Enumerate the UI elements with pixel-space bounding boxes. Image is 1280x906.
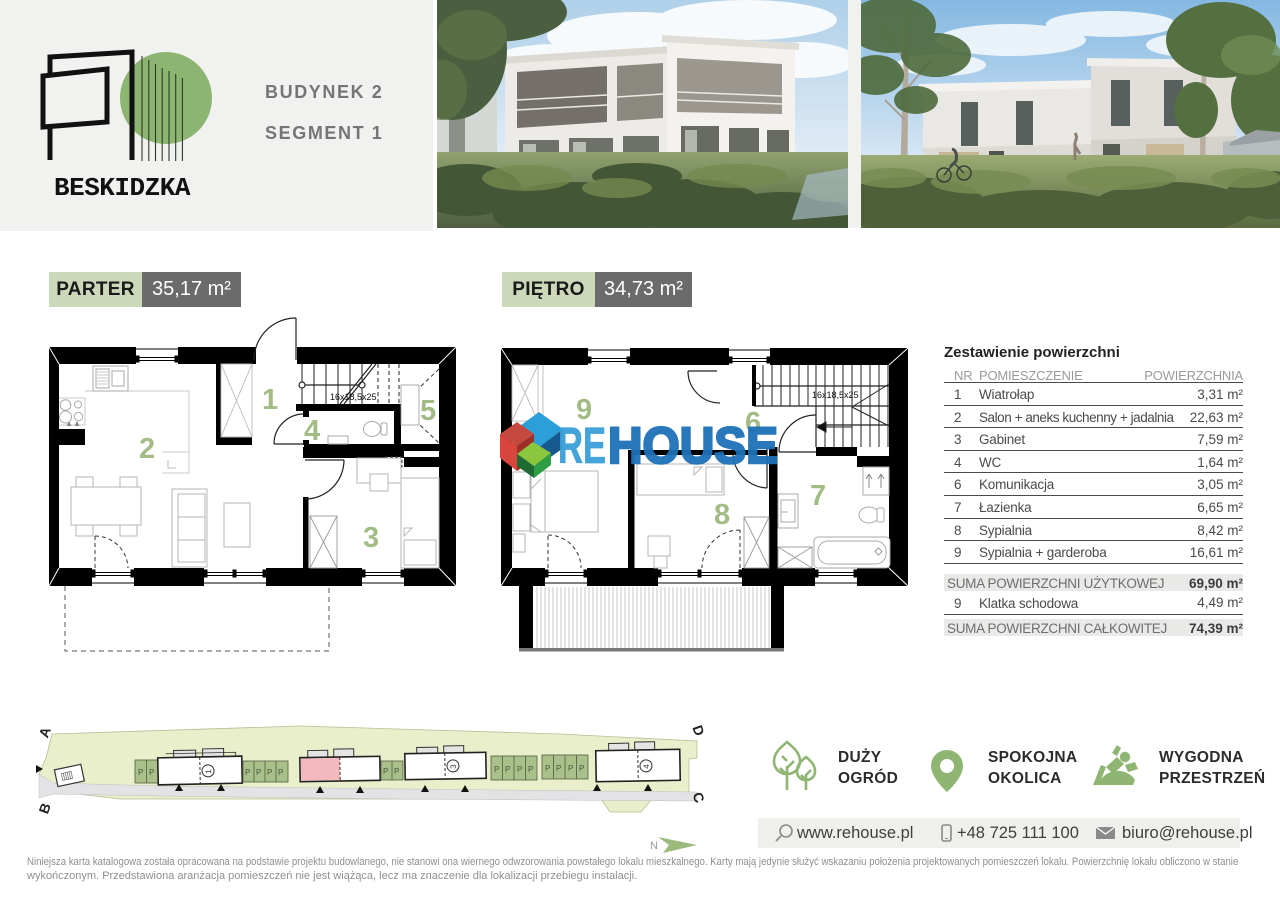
- svg-text:7: 7: [810, 480, 826, 512]
- svg-text:RE: RE: [558, 417, 606, 474]
- svg-text:2: 2: [139, 433, 155, 465]
- svg-text:P: P: [267, 768, 272, 777]
- svg-text:N: N: [650, 840, 658, 852]
- svg-text:5: 5: [420, 395, 436, 427]
- svg-text:P: P: [245, 768, 250, 777]
- svg-text:P: P: [494, 765, 499, 774]
- svg-text:3: 3: [449, 764, 458, 769]
- svg-text:3: 3: [363, 522, 379, 554]
- svg-text:P: P: [149, 768, 154, 777]
- svg-text:8: 8: [714, 499, 730, 531]
- svg-text:A: A: [35, 725, 53, 740]
- svg-text:P: P: [579, 764, 584, 773]
- svg-text:P: P: [256, 768, 261, 777]
- svg-text:P: P: [278, 768, 283, 777]
- svg-text:P: P: [138, 768, 143, 777]
- svg-text:P: P: [517, 765, 522, 774]
- svg-text:16x18,5x25: 16x18,5x25: [812, 390, 859, 400]
- svg-text:P: P: [545, 764, 550, 773]
- svg-text:P: P: [394, 767, 399, 776]
- svg-text:4: 4: [642, 764, 651, 769]
- svg-text:P: P: [383, 767, 388, 776]
- svg-text:HOUSE: HOUSE: [608, 417, 778, 474]
- svg-text:16x18,5x25: 16x18,5x25: [330, 392, 377, 402]
- svg-text:B: B: [35, 801, 53, 816]
- svg-text:P: P: [528, 765, 533, 774]
- svg-text:1: 1: [204, 769, 213, 774]
- svg-text:P: P: [568, 764, 573, 773]
- svg-text:P: P: [505, 765, 510, 774]
- svg-text:1: 1: [262, 384, 278, 416]
- svg-text:4: 4: [304, 415, 320, 447]
- svg-text:D: D: [689, 723, 707, 738]
- svg-text:P: P: [556, 764, 561, 773]
